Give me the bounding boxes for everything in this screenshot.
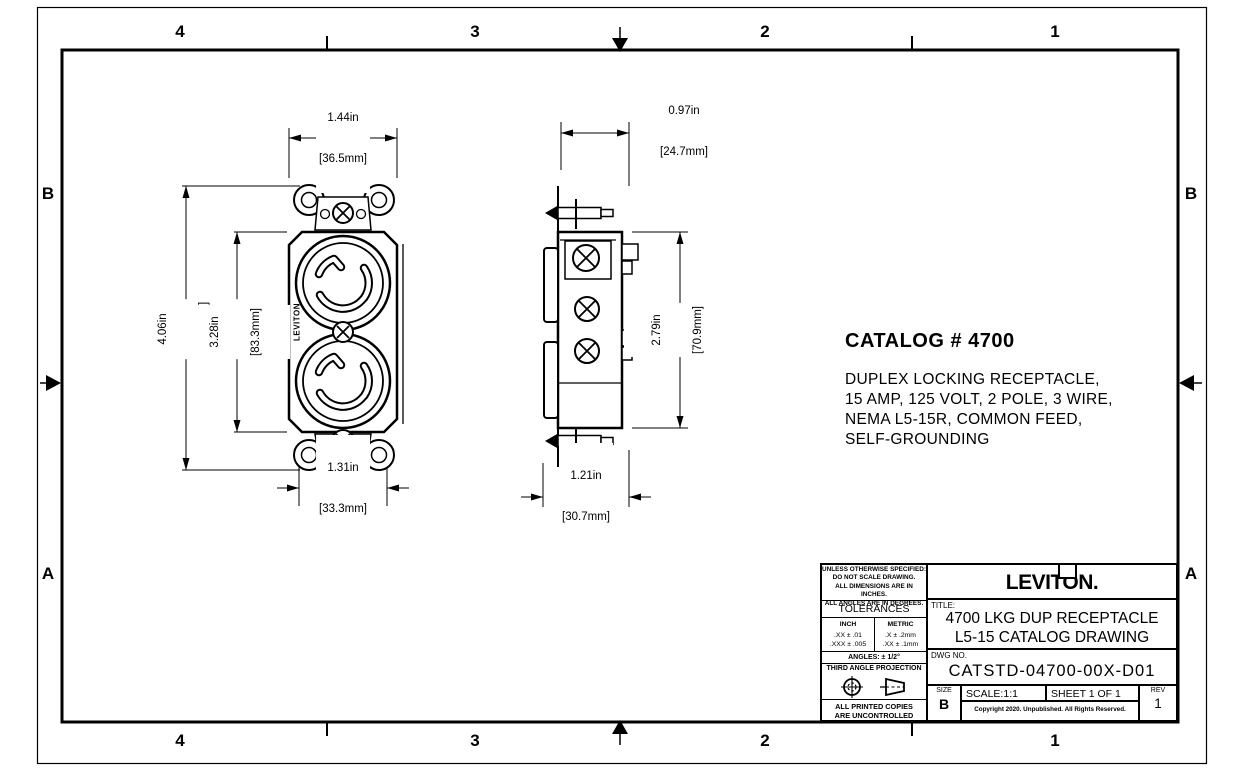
leviton-logo-square-icon (1058, 563, 1077, 579)
catalog-desc-line: SELF-GROUNDING (845, 430, 1113, 450)
angles-tolerance: ANGLES: ± 1/2° (822, 652, 928, 664)
title-block: UNLESS OTHERWISE SPECIFIED: DO NOT SCALE… (820, 563, 1178, 722)
dwg-number: CATSTD-04700-00X-D01 (928, 662, 1176, 681)
dwg-no-cell: DWG NO. CATSTD-04700-00X-D01 (928, 650, 1176, 686)
uncontrolled-note: ALL PRINTED COPIES ARE UNCONTROLLED (822, 700, 928, 720)
scale-cell: SCALE:1:1 (962, 686, 1047, 702)
drawing-title-line: L5-15 CATALOG DRAWING (928, 629, 1176, 648)
dwg-no-label: DWG NO. (928, 650, 1176, 660)
copyright-cell: Copyright 2020. Unpublished. All Rights … (962, 702, 1140, 720)
leviton-logo: LEVITON. (1006, 571, 1098, 595)
tolerances-header: TOLERANCES (822, 601, 928, 618)
rev-value: 1 (1140, 696, 1176, 711)
catalog-desc-line: DUPLEX LOCKING RECEPTACLE, (845, 370, 1113, 390)
zone-row-right-b: B (1185, 184, 1197, 204)
size-value: B (928, 696, 960, 712)
size-cell: SIZE B (928, 686, 962, 720)
zone-row-right-a: A (1185, 564, 1197, 584)
tolerance-inch-column: INCH .XX ± .01 .XXX ± .005 (822, 618, 875, 652)
zone-col-bottom-3: 3 (470, 731, 479, 751)
zone-col-bottom-4: 4 (175, 731, 184, 751)
drawing-title-line: 4700 LKG DUP RECEPTACLE (928, 610, 1176, 629)
title-cell: TITLE: 4700 LKG DUP RECEPTACLE L5-15 CAT… (928, 600, 1176, 650)
catalog-note: CATALOG # 4700 DUPLEX LOCKING RECEPTACLE… (845, 330, 1113, 450)
rev-cell: REV 1 (1140, 686, 1176, 720)
zone-row-left-b: B (42, 184, 54, 204)
zone-col-top-3: 3 (470, 22, 479, 42)
zone-row-left-a: A (42, 564, 54, 584)
brand-logo-cell: LEVITON. (928, 565, 1176, 600)
catalog-title: CATALOG # 4700 (845, 330, 1113, 353)
third-angle-projection-symbols (822, 675, 926, 699)
zone-col-top-1: 1 (1050, 22, 1059, 42)
device-brand-text: LEVITON (293, 303, 302, 341)
dim-side-base-depth: 1.21in [30.7mm] (559, 443, 613, 551)
catalog-desc-line: NEMA L5-15R, COMMON FEED, (845, 410, 1113, 430)
zone-col-top-2: 2 (760, 22, 769, 42)
catalog-desc-line: 15 AMP, 125 VOLT, 2 POLE, 3 WIRE, (845, 390, 1113, 410)
projection-front-symbol-icon (840, 675, 864, 699)
sheet-cell: SHEET 1 OF 1 (1047, 686, 1140, 702)
zone-col-top-4: 4 (175, 22, 184, 42)
dim-side-depth: 0.97in [24.7mm] (657, 78, 711, 186)
rev-label: REV (1140, 687, 1176, 694)
dim-side-body-height: 2.79in [70.9mm] (624, 303, 732, 357)
dim-front-body-height: 3.28in [83.3mm] (182, 305, 290, 359)
zone-col-bottom-1: 1 (1050, 731, 1059, 751)
title-label: TITLE: (928, 600, 1176, 610)
projection-row: THIRD ANGLE PROJECTION (822, 664, 928, 700)
projection-side-symbol-icon (879, 676, 909, 698)
spec-notes: UNLESS OTHERWISE SPECIFIED: DO NOT SCALE… (822, 565, 928, 601)
size-label: SIZE (928, 687, 960, 694)
front-view-part (289, 185, 403, 470)
zone-col-bottom-2: 2 (760, 731, 769, 751)
dim-front-strap-width: 1.31in [33.3mm] (316, 435, 370, 543)
drawing-sheet: 4 3 2 1 4 3 2 1 B A B A 1.44in [36.5mm] … (0, 0, 1241, 771)
projection-label: THIRD ANGLE PROJECTION (822, 665, 926, 672)
dim-front-width: 1.44in [36.5mm] (316, 85, 370, 193)
tolerance-metric-column: METRIC .X ± .2mm .XX ± .1mm (875, 618, 928, 652)
